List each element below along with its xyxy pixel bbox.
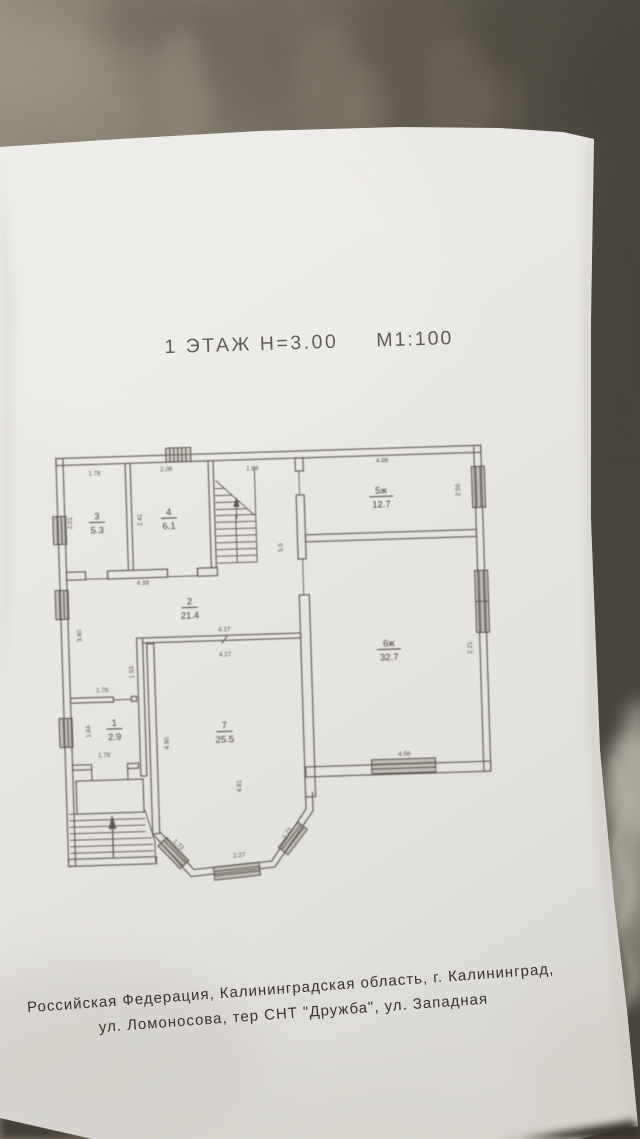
svg-text:5.3: 5.3 <box>90 525 104 536</box>
svg-text:3.40: 3.40 <box>76 629 83 642</box>
svg-text:6ж: 6ж <box>383 638 396 649</box>
svg-text:7: 7 <box>222 720 228 731</box>
svg-text:4.27: 4.27 <box>219 651 232 658</box>
svg-text:1.78: 1.78 <box>96 687 109 694</box>
svg-text:2.06: 2.06 <box>160 466 173 473</box>
svg-text:4.98: 4.98 <box>398 751 411 758</box>
svg-text:2.01: 2.01 <box>67 516 74 529</box>
svg-text:4.90: 4.90 <box>164 737 171 750</box>
svg-text:3: 3 <box>94 511 100 522</box>
svg-text:32.7: 32.7 <box>380 652 399 664</box>
svg-text:1.78: 1.78 <box>88 470 101 477</box>
svg-text:1.78: 1.78 <box>98 752 111 759</box>
svg-text:4.38: 4.38 <box>137 580 150 587</box>
svg-text:1.88: 1.88 <box>246 465 259 472</box>
svg-text:4.81: 4.81 <box>236 779 243 792</box>
svg-text:1: 1 <box>111 718 117 729</box>
svg-text:12.7: 12.7 <box>372 499 391 511</box>
svg-text:21.4: 21.4 <box>180 610 199 622</box>
svg-text:2: 2 <box>187 596 193 607</box>
svg-text:2.9: 2.9 <box>108 732 122 743</box>
svg-text:2.56: 2.56 <box>455 483 462 496</box>
svg-text:4: 4 <box>166 507 172 518</box>
svg-text:2.41: 2.41 <box>137 513 144 526</box>
svg-text:4.27: 4.27 <box>218 626 231 633</box>
svg-text:1.53: 1.53 <box>128 666 135 679</box>
svg-text:5.5: 5.5 <box>278 543 285 552</box>
svg-text:5ж: 5ж <box>375 485 388 496</box>
svg-text:6.1: 6.1 <box>162 521 176 532</box>
svg-text:2.21: 2.21 <box>467 641 474 654</box>
svg-text:25.5: 25.5 <box>215 734 234 746</box>
svg-text:1.84: 1.84 <box>85 725 92 738</box>
svg-text:2.27: 2.27 <box>233 852 246 860</box>
svg-text:М1:100: М1:100 <box>376 327 454 351</box>
svg-text:4.98: 4.98 <box>376 457 389 464</box>
